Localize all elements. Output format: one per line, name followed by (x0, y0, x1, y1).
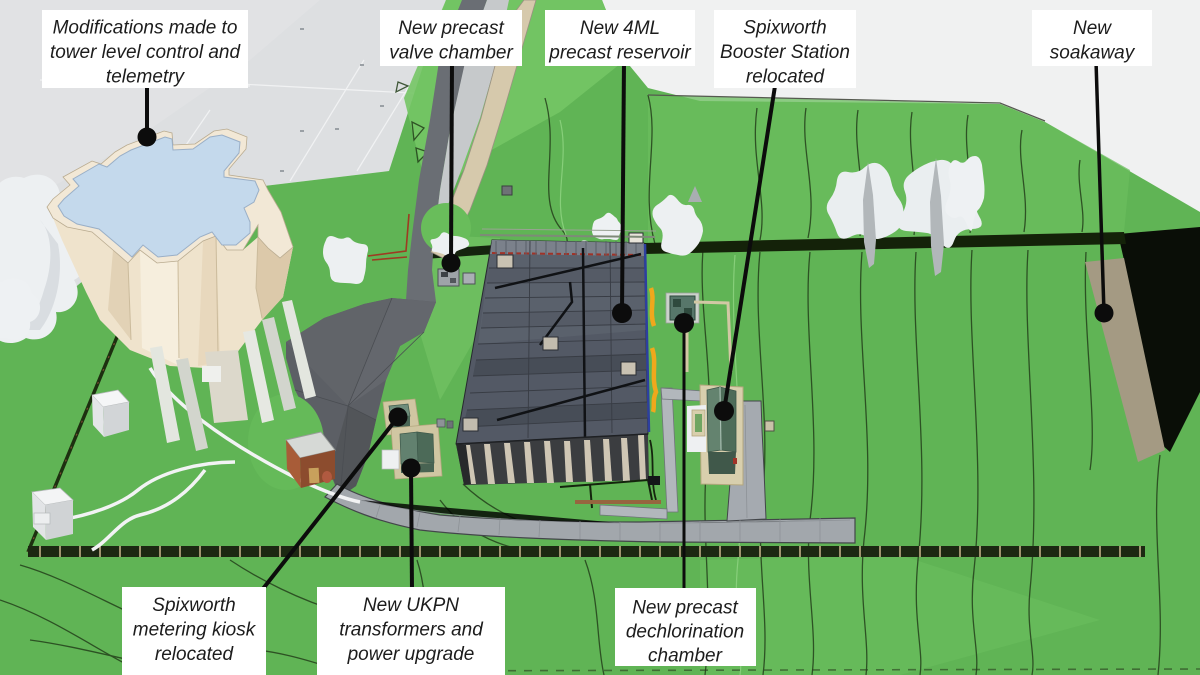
svg-text:metering kiosk: metering kiosk (133, 620, 257, 641)
svg-text:tower level control and: tower level control and (50, 42, 242, 63)
svg-text:relocated: relocated (155, 644, 235, 665)
svg-text:precast reservoir: precast reservoir (548, 43, 691, 64)
svg-text:Spixworth: Spixworth (152, 595, 235, 616)
svg-text:power upgrade: power upgrade (347, 644, 475, 665)
svg-text:soakaway: soakaway (1050, 43, 1136, 64)
svg-text:transformers and: transformers and (339, 620, 484, 641)
svg-text:Booster Station: Booster Station (720, 42, 850, 63)
svg-text:New UKPN: New UKPN (363, 595, 459, 616)
svg-text:dechlorination: dechlorination (626, 622, 744, 643)
svg-text:Modifications made to: Modifications made to (53, 18, 238, 39)
svg-text:New: New (1073, 18, 1112, 39)
svg-text:New precast: New precast (398, 18, 504, 39)
svg-text:New precast: New precast (632, 598, 738, 619)
svg-text:New 4ML: New 4ML (580, 18, 660, 39)
svg-text:chamber: chamber (648, 646, 723, 667)
svg-text:Spixworth: Spixworth (743, 18, 826, 39)
svg-text:valve chamber: valve chamber (389, 43, 513, 64)
svg-text:relocated: relocated (746, 67, 826, 88)
svg-text:telemetry: telemetry (106, 67, 186, 88)
